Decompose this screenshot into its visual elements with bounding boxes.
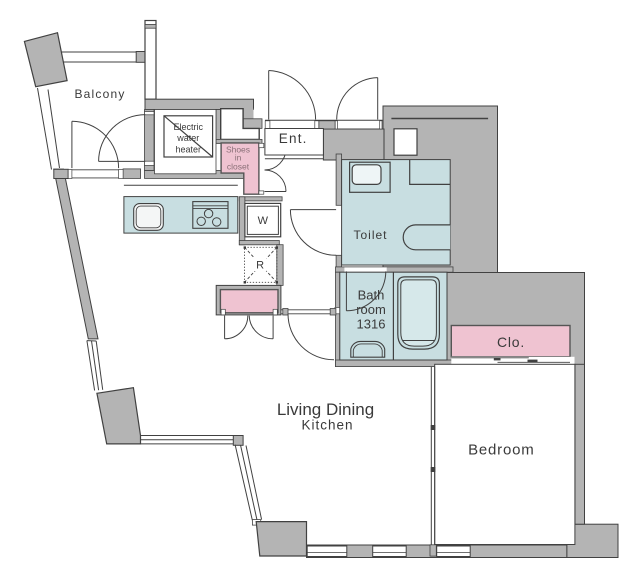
svg-text:W: W: [258, 215, 269, 227]
svg-text:Clo.: Clo.: [497, 334, 525, 350]
svg-text:Ent.: Ent.: [279, 131, 308, 146]
svg-text:Balcony: Balcony: [74, 87, 125, 101]
svg-text:R: R: [256, 259, 264, 271]
svg-text:water: water: [176, 133, 199, 143]
svg-text:Bath: Bath: [358, 288, 385, 303]
svg-text:Kitchen: Kitchen: [301, 417, 353, 432]
svg-text:heater: heater: [176, 145, 202, 155]
svg-text:Electric: Electric: [174, 122, 204, 132]
svg-text:closet: closet: [227, 161, 250, 171]
svg-text:1316: 1316: [357, 317, 386, 332]
svg-text:room: room: [356, 302, 386, 317]
svg-text:Toilet: Toilet: [353, 228, 387, 242]
svg-text:Bedroom: Bedroom: [468, 442, 534, 459]
